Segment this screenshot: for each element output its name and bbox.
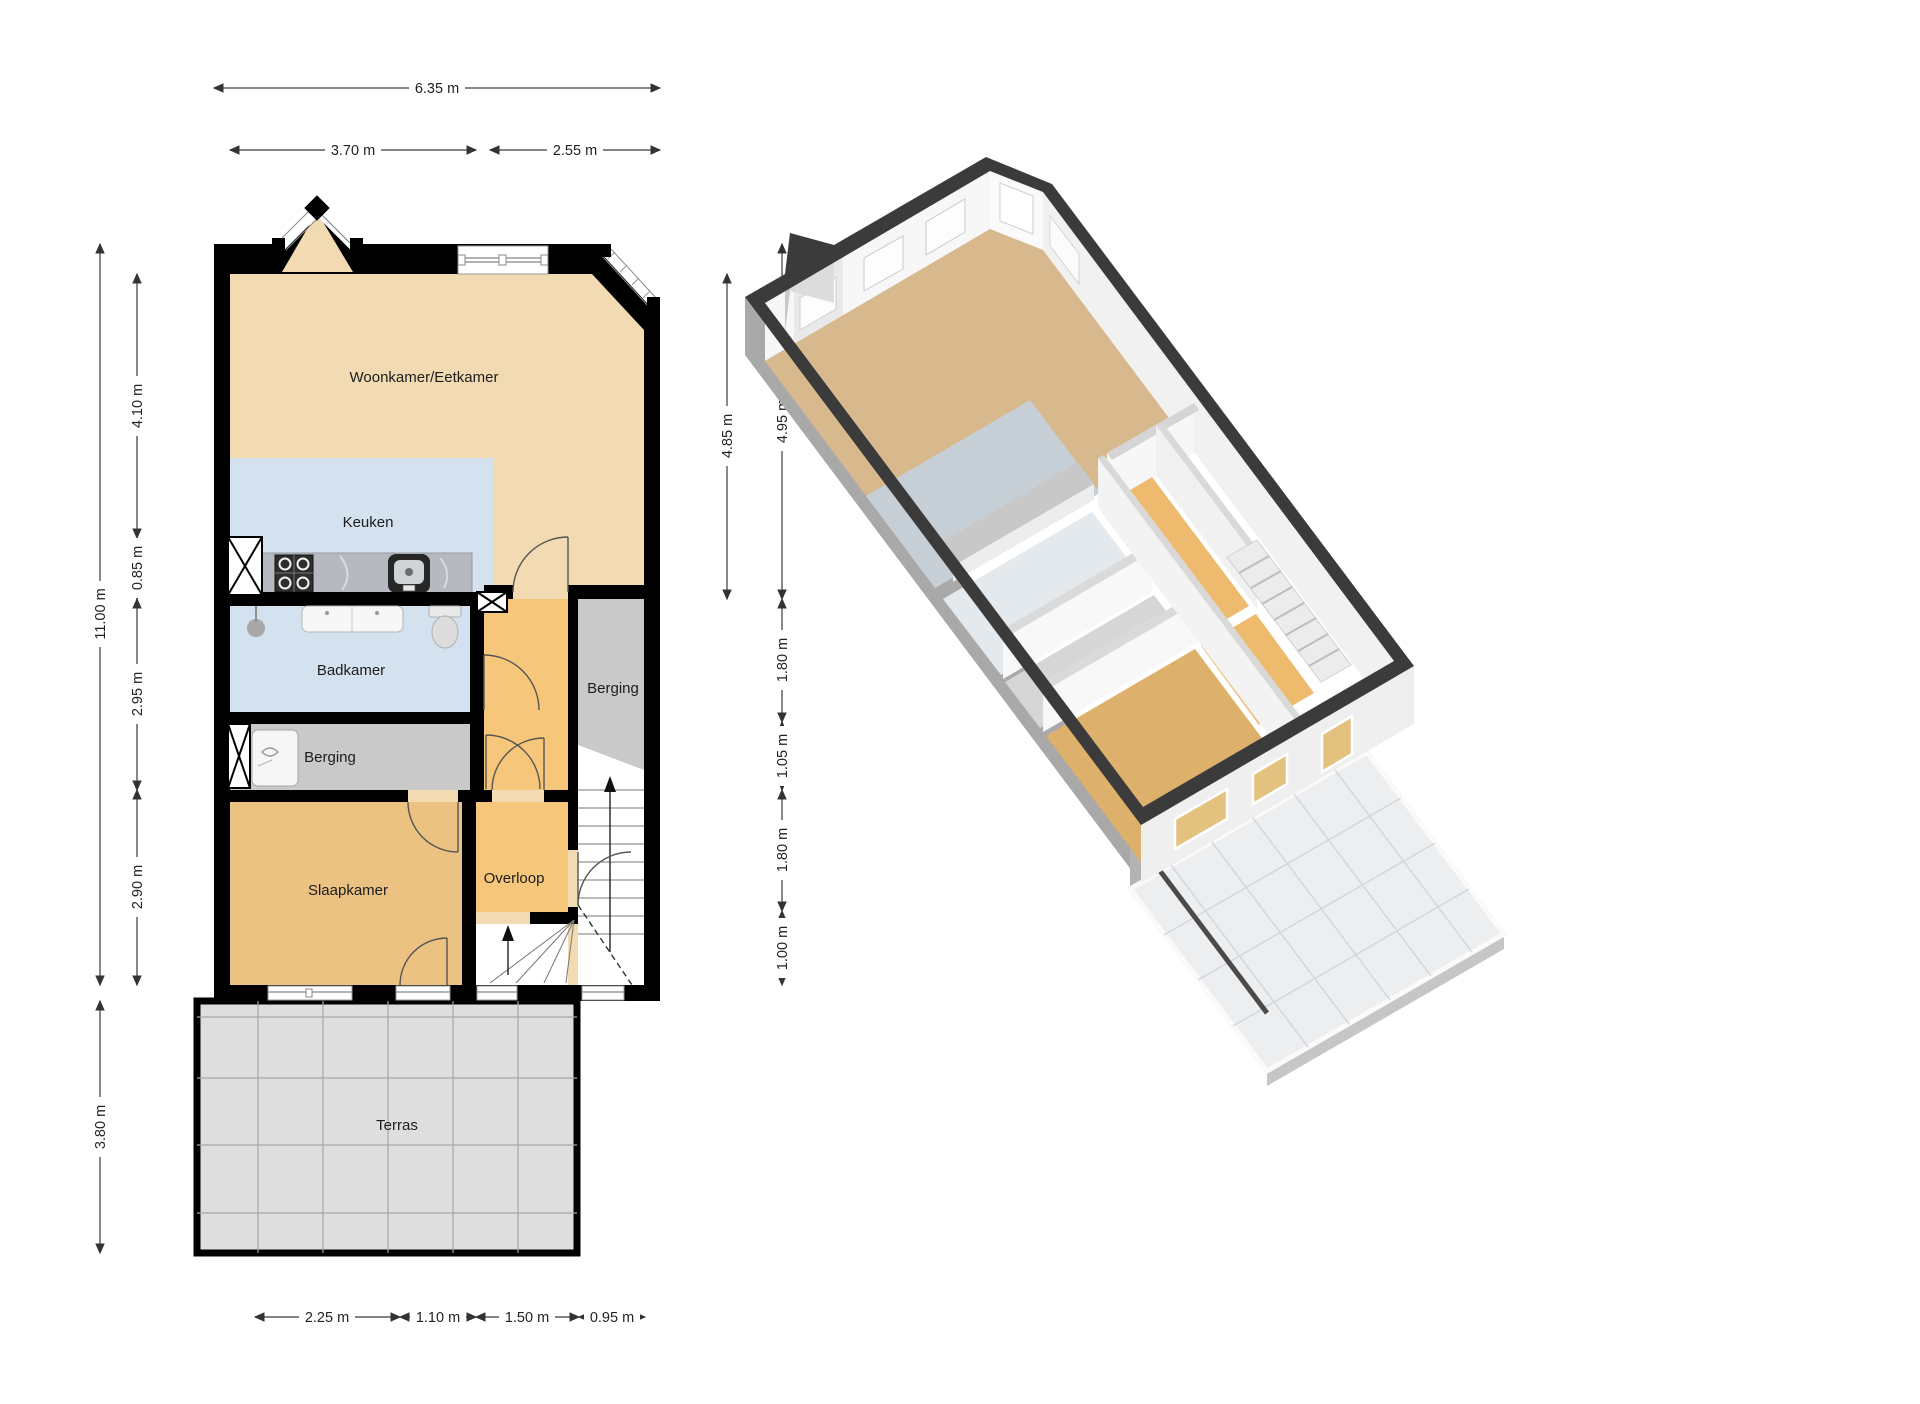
svg-text:1.80 m: 1.80 m xyxy=(775,638,791,682)
dimension-right-inner: 4.85 m xyxy=(718,274,736,599)
terras-label: Terras xyxy=(376,1117,418,1134)
svg-text:3.80 m: 3.80 m xyxy=(93,1105,109,1149)
woonkamer-label: Woonkamer/Eetkamer xyxy=(350,369,499,386)
dimension-left-terras: 3.80 m xyxy=(91,1001,109,1253)
window-top xyxy=(458,246,548,274)
dimension-right-3: 1.05 m xyxy=(773,722,791,790)
dimension-left-4: 2.90 m xyxy=(128,790,146,985)
washbasin-icon xyxy=(302,606,403,632)
dimension-top-total: 6.35 m xyxy=(214,79,660,97)
berging-left-label: Berging xyxy=(304,749,356,766)
dimension-left-3: 2.95 m xyxy=(128,599,146,790)
svg-text:2.95 m: 2.95 m xyxy=(130,672,146,716)
dimension-bottom-4: 0.95 m xyxy=(579,1308,645,1326)
washing-machine-icon xyxy=(252,730,298,786)
kitchen-counter xyxy=(258,553,472,594)
hall-floor xyxy=(484,599,568,790)
dimension-bottom-2: 1.10 m xyxy=(400,1308,476,1326)
svg-text:4.10 m: 4.10 m xyxy=(130,384,146,428)
dimension-top-left: 3.70 m xyxy=(230,141,476,159)
svg-text:1.00 m: 1.00 m xyxy=(775,926,791,970)
svg-text:6.35 m: 6.35 m xyxy=(415,81,459,97)
stove-icon xyxy=(275,555,313,592)
svg-text:2.90 m: 2.90 m xyxy=(130,865,146,909)
room-badkamer: Badkamer xyxy=(230,606,470,712)
svg-text:1.10 m: 1.10 m xyxy=(416,1310,460,1326)
svg-text:4.85 m: 4.85 m xyxy=(720,414,736,458)
floorplan-page: Terras xyxy=(0,0,1920,1404)
svg-text:1.80 m: 1.80 m xyxy=(775,828,791,872)
slaapkamer-label: Slaapkamer xyxy=(308,882,388,899)
dimension-right-4: 1.80 m xyxy=(773,790,791,911)
svg-text:0.85 m: 0.85 m xyxy=(130,546,146,590)
dimension-right-2: 1.80 m xyxy=(773,599,791,722)
shaft-icon-berging xyxy=(228,724,250,788)
room-terras: Terras xyxy=(197,1001,577,1253)
svg-text:0.95 m: 0.95 m xyxy=(590,1310,634,1326)
stairs-straight xyxy=(578,745,644,985)
svg-text:2.25 m: 2.25 m xyxy=(305,1310,349,1326)
dimension-bottom-3: 1.50 m xyxy=(476,1308,579,1326)
dimension-left-1: 4.10 m xyxy=(128,274,146,538)
sink-icon xyxy=(388,554,430,593)
floorplan-canvas: Terras xyxy=(0,0,1920,1404)
dimension-left-total: 11.00 m xyxy=(91,244,109,985)
overloop-floor xyxy=(476,802,568,912)
floorplan-2d: Terras xyxy=(91,79,791,1326)
svg-text:2.55 m: 2.55 m xyxy=(553,143,597,159)
room-berging-right: Berging xyxy=(578,599,644,770)
overloop-label: Overloop xyxy=(484,870,545,887)
keuken-label: Keuken xyxy=(343,514,394,531)
floorplan-3d xyxy=(745,157,1504,1086)
room-overloop: Overloop xyxy=(476,802,568,912)
room-slaapkamer: Slaapkamer xyxy=(230,802,462,985)
dimension-bottom-1: 2.25 m xyxy=(255,1308,400,1326)
stairs-winder xyxy=(476,920,574,985)
svg-text:11.00 m: 11.00 m xyxy=(93,588,109,639)
berging-right-label: Berging xyxy=(587,680,639,697)
dimension-left-2: 0.85 m xyxy=(128,538,146,599)
svg-text:3.70 m: 3.70 m xyxy=(331,143,375,159)
dimension-right-5: 1.00 m xyxy=(773,911,791,985)
svg-text:1.50 m: 1.50 m xyxy=(505,1310,549,1326)
shaft-icon-hall xyxy=(477,592,507,612)
badkamer-label: Badkamer xyxy=(317,662,385,679)
shaft-icon-kitchen xyxy=(228,537,262,595)
svg-text:1.05 m: 1.05 m xyxy=(775,734,791,778)
dimension-top-right: 2.55 m xyxy=(490,141,660,159)
room-berging-left: Berging xyxy=(230,724,470,790)
